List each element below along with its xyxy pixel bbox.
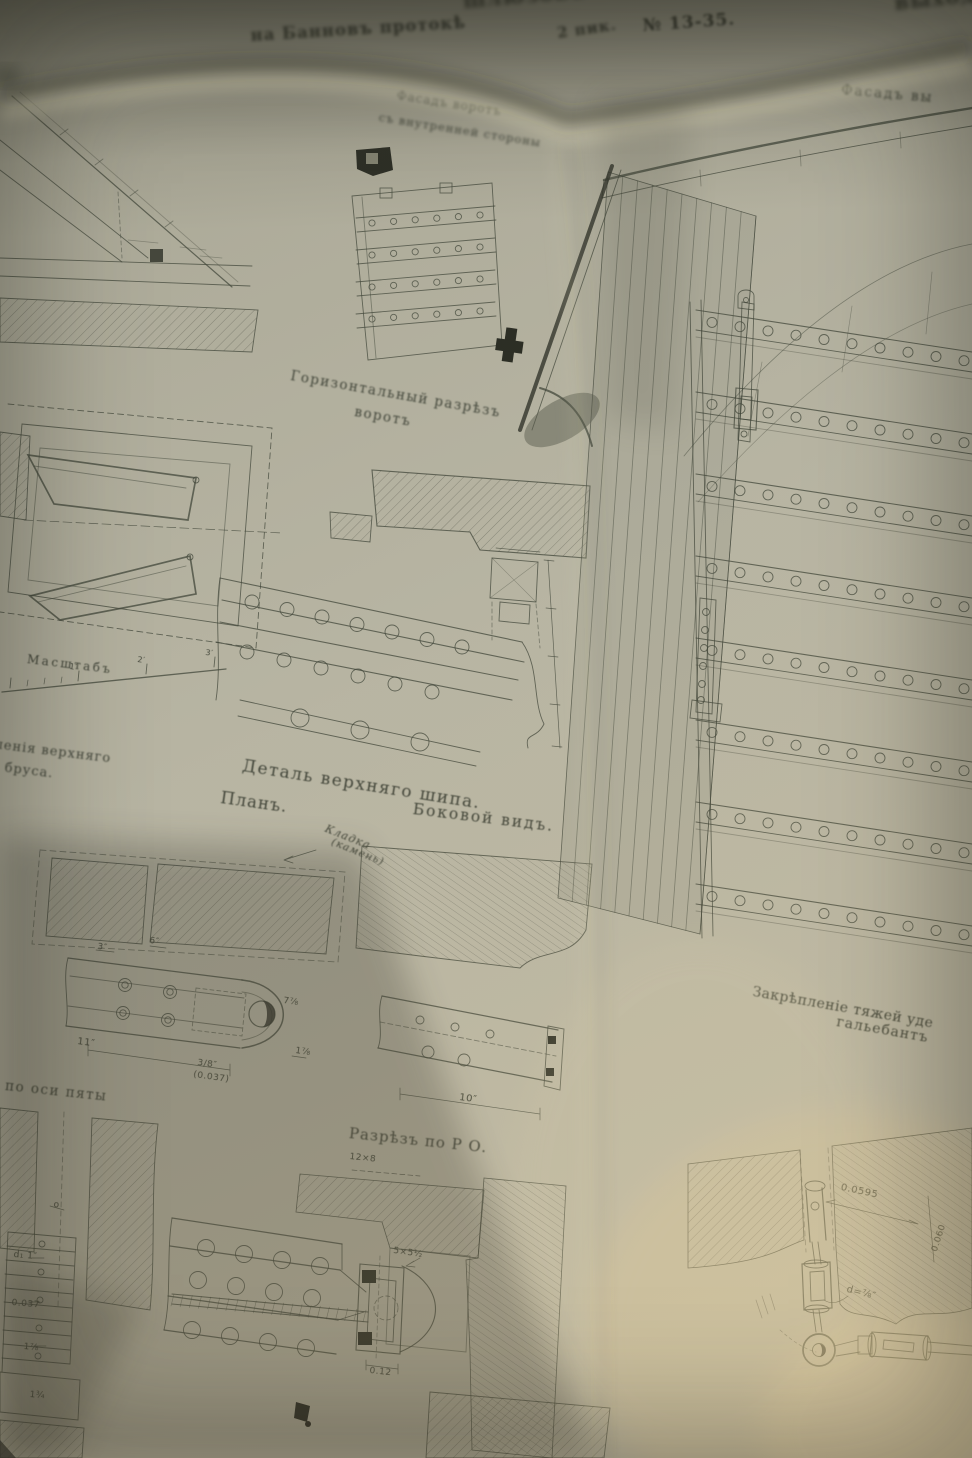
dim-1-78b: 1⅞ (23, 1342, 39, 1353)
scale-tick-3ft: 3′ (205, 648, 214, 658)
paper-sheet (0, 0, 972, 1458)
dim-1-34: 1¾ (29, 1390, 45, 1401)
dim-6in: 6″ (149, 936, 160, 947)
dim-d1-1in: d₁ 1″ (13, 1250, 38, 1262)
dim-012: 0.12 (369, 1366, 392, 1378)
dim-3in: 3″ (97, 942, 108, 953)
dim-10in: 10″ (458, 1092, 477, 1105)
dim-7-78: 7⅞ (283, 996, 300, 1008)
scale-tick-1ft: 1′ (69, 662, 78, 672)
dim-o-mark: о (53, 1200, 60, 1210)
dim-11in: 11″ (76, 1036, 95, 1049)
dim-1-78: 1⅞ (295, 1046, 312, 1058)
scale-tick-2ft: 2′ (137, 655, 146, 665)
photographed-blueprint-sheet: шлюзовъ выходо на Банновъ протокѣ 2 пик.… (0, 0, 972, 1458)
